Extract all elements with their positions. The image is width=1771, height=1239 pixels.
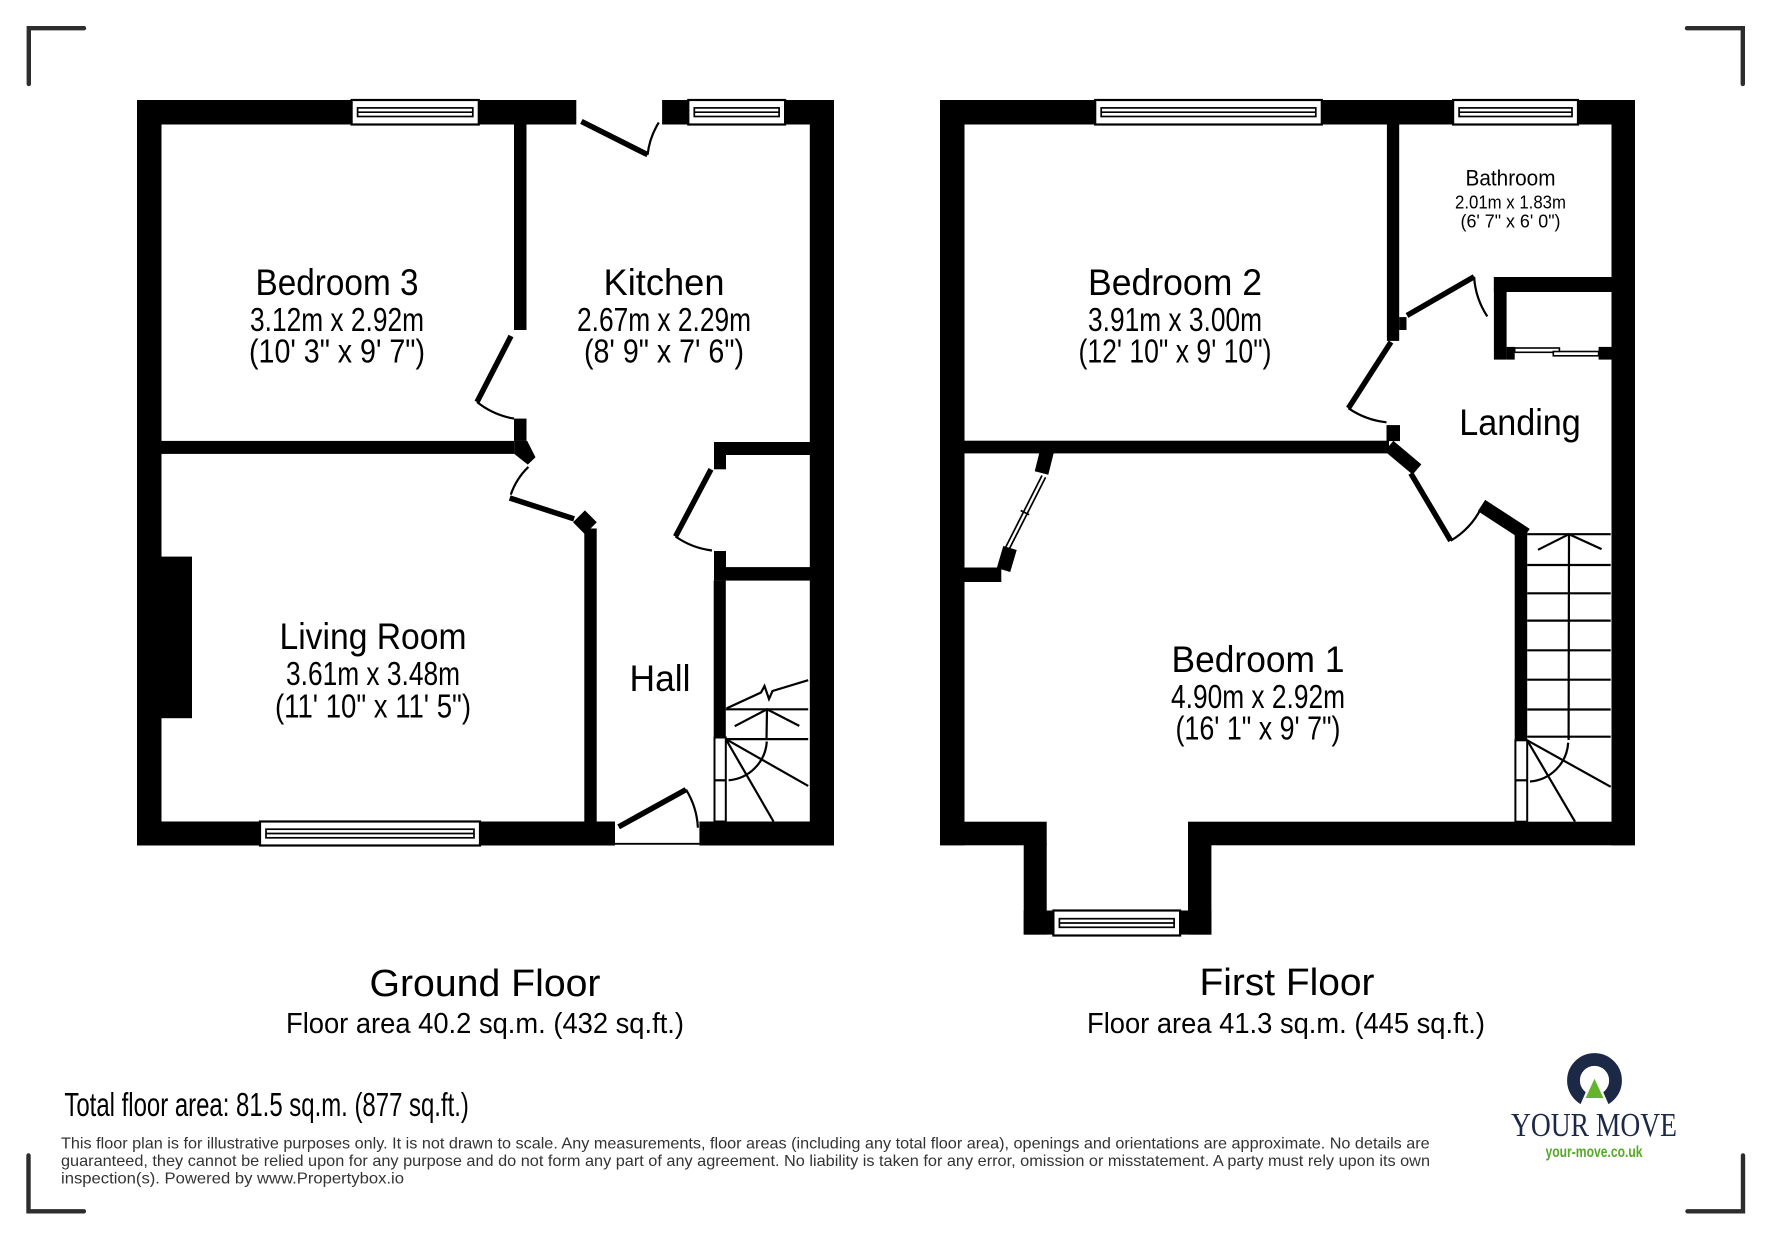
svg-text:YOUR MOVE: YOUR MOVE	[1511, 1107, 1677, 1144]
svg-text:Landing: Landing	[1459, 402, 1581, 443]
svg-text:Bathroom: Bathroom	[1466, 166, 1556, 191]
svg-text:(11' 10" x 11' 5"): (11' 10" x 11' 5")	[275, 688, 471, 725]
svg-text:(12' 10" x 9' 10"): (12' 10" x 9' 10")	[1079, 333, 1272, 370]
svg-text:(8' 9" x 7' 6"): (8' 9" x 7' 6")	[584, 333, 744, 370]
svg-text:(6' 7" x 6' 0"): (6' 7" x 6' 0")	[1461, 211, 1561, 232]
svg-text:Total floor area: 81.5 sq.m. (: Total floor area: 81.5 sq.m. (877 sq.ft.…	[64, 1086, 469, 1123]
svg-text:guaranteed, they cannot be rel: guaranteed, they cannot be relied upon f…	[61, 1153, 1430, 1170]
svg-text:your-move.co.uk: your-move.co.uk	[1546, 1144, 1643, 1161]
svg-text:Floor area 41.3 sq.m. (445 sq.: Floor area 41.3 sq.m. (445 sq.ft.)	[1087, 1008, 1485, 1040]
svg-text:2.01m x 1.83m: 2.01m x 1.83m	[1455, 192, 1566, 213]
svg-text:(16' 1" x 9' 7"): (16' 1" x 9' 7")	[1176, 710, 1341, 747]
svg-text:Hall: Hall	[630, 658, 691, 699]
svg-text:3.61m x 3.48m: 3.61m x 3.48m	[286, 655, 460, 692]
svg-text:Ground Floor: Ground Floor	[370, 963, 601, 1005]
svg-text:First Floor: First Floor	[1200, 962, 1375, 1004]
svg-text:(10' 3" x 9' 7"): (10' 3" x 9' 7")	[249, 333, 425, 370]
svg-text:Bedroom 1: Bedroom 1	[1172, 639, 1345, 680]
svg-text:Bedroom 3: Bedroom 3	[256, 262, 419, 303]
svg-text:This floor plan is for illustr: This floor plan is for illustrative purp…	[61, 1136, 1430, 1153]
svg-text:inspection(s). Powered by www.: inspection(s). Powered by www.Propertybo…	[61, 1171, 404, 1188]
svg-text:Kitchen: Kitchen	[604, 262, 725, 303]
svg-text:Floor area 40.2 sq.m. (432 sq.: Floor area 40.2 sq.m. (432 sq.ft.)	[286, 1008, 684, 1040]
svg-text:Bedroom 2: Bedroom 2	[1088, 262, 1262, 303]
svg-text:Living Room: Living Room	[280, 616, 467, 657]
